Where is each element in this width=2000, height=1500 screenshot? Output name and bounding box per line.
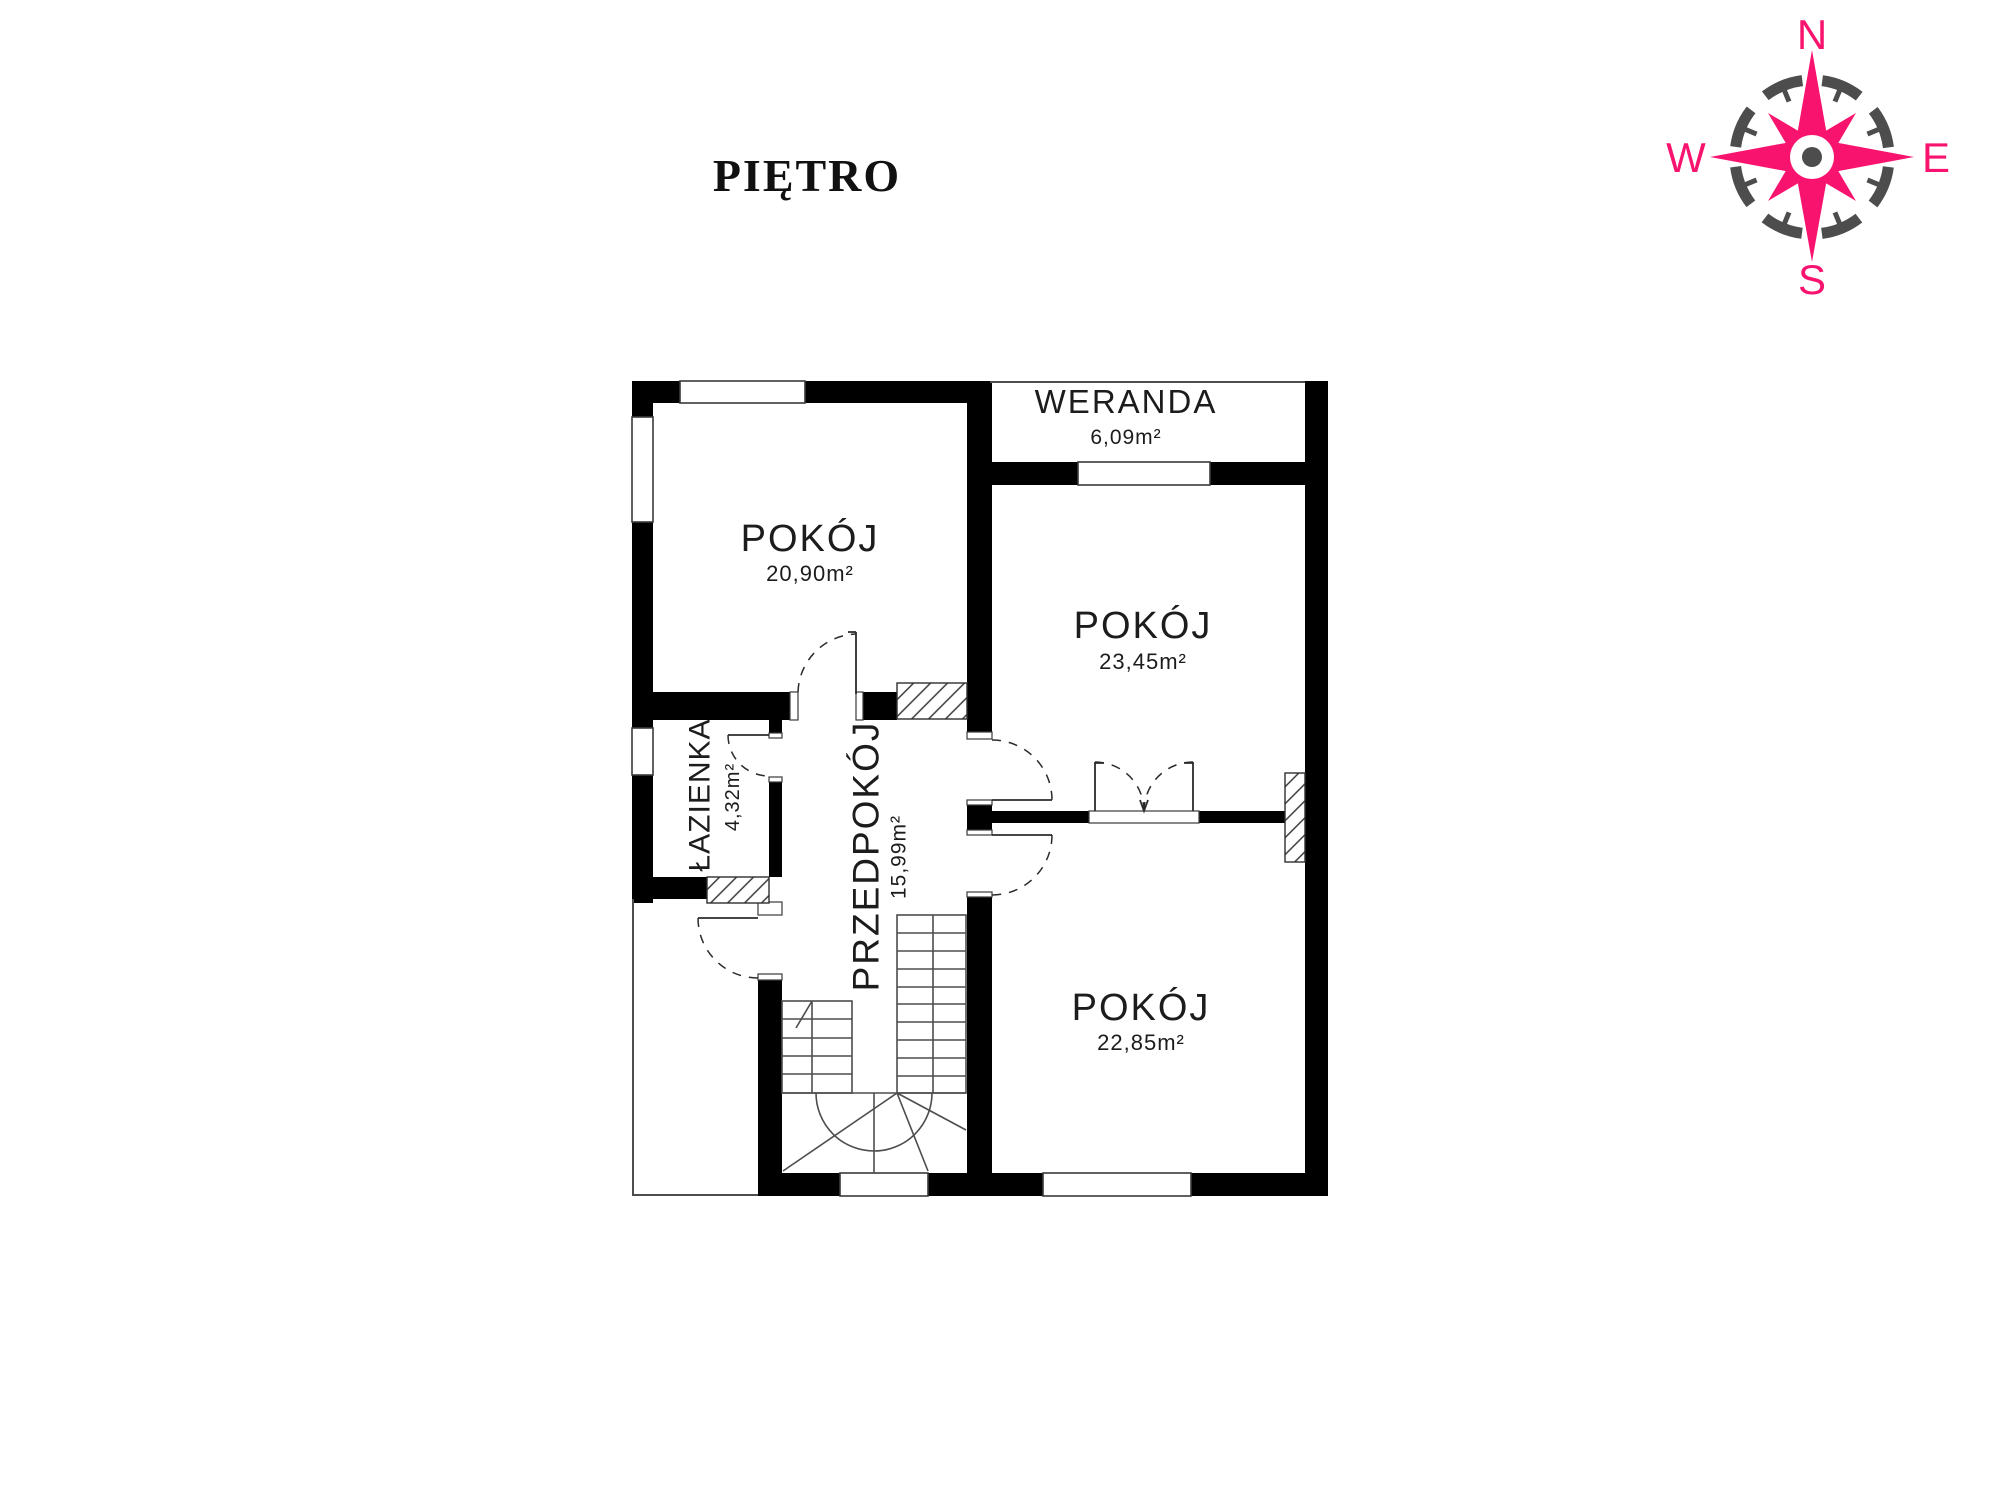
window-left-upper xyxy=(632,417,653,522)
door-pokoj-top-left xyxy=(798,632,856,694)
compass-label-west: W xyxy=(1666,134,1706,181)
room-area: 15,99m² xyxy=(888,815,911,899)
room-area: 6,09m² xyxy=(1090,426,1161,449)
open-area-outline xyxy=(633,899,758,1195)
room-pokoj-right: POKÓJ 23,45m² xyxy=(1074,604,1213,674)
room-lazienka: ŁAZIENKA 4,32m² xyxy=(684,718,745,871)
window-veranda xyxy=(1078,462,1210,485)
room-area: 23,45m² xyxy=(1099,649,1187,674)
window-bottom-stairs xyxy=(840,1173,928,1196)
room-area: 4,32m² xyxy=(722,763,744,831)
room-weranda: WERANDA 6,09m² xyxy=(1035,383,1218,449)
compass-hub-dot xyxy=(1802,147,1822,167)
door-pokoj-bottom-right xyxy=(992,835,1052,895)
compass-label-north: N xyxy=(1797,11,1827,58)
window-bottom-room xyxy=(1043,1173,1191,1196)
windows xyxy=(632,381,1210,1196)
page-title: PIĘTRO xyxy=(713,150,901,201)
room-area: 22,85m² xyxy=(1097,1030,1185,1055)
floor-plan-page: PIĘTRO xyxy=(0,0,2000,1500)
chimney-east-wall xyxy=(1285,773,1305,862)
door-pokoj-right xyxy=(992,740,1052,800)
room-pokoj-top-left: POKÓJ 20,90m² xyxy=(741,517,880,586)
room-name: POKÓJ xyxy=(1072,986,1211,1029)
room-name: PRZEDPOKÓJ xyxy=(846,721,887,992)
compass-label-south: S xyxy=(1798,256,1826,303)
room-area: 20,90m² xyxy=(766,561,854,586)
floor-plan-canvas: PIĘTRO xyxy=(0,0,2000,1500)
chimney-center xyxy=(897,683,967,719)
compass-label-east: E xyxy=(1922,134,1950,181)
room-name: ŁAZIENKA xyxy=(684,718,717,871)
chimney-bathroom xyxy=(707,877,769,903)
compass-rose: N E S W xyxy=(1666,11,1950,303)
room-name: POKÓJ xyxy=(741,517,880,560)
door-open-area xyxy=(698,918,758,978)
room-name: POKÓJ xyxy=(1074,604,1213,647)
stair-break-line xyxy=(796,1001,812,1028)
window-top xyxy=(680,381,805,403)
double-door xyxy=(1095,762,1193,811)
room-name: WERANDA xyxy=(1035,383,1218,420)
window-left-bathroom xyxy=(632,728,653,775)
room-pokoj-bottom-right: POKÓJ 22,85m² xyxy=(1072,986,1211,1055)
